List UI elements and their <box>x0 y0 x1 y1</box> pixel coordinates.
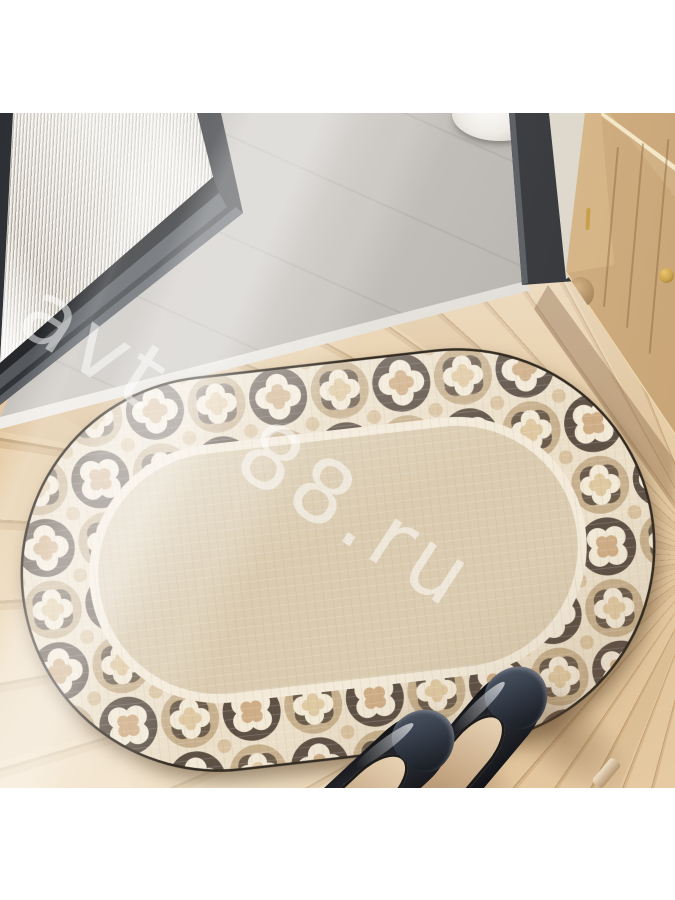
product-photo: avt 88.ru <box>0 113 675 788</box>
cabinet-knob <box>659 268 674 283</box>
cabinet-panel-groove <box>626 143 644 327</box>
